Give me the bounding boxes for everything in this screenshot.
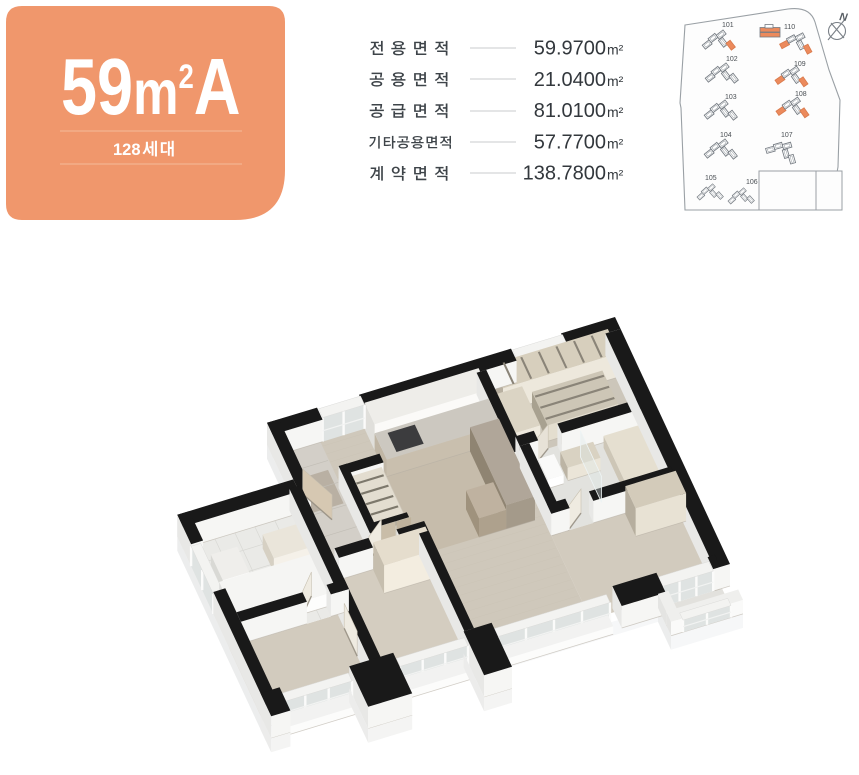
svg-text:101: 101 bbox=[722, 22, 734, 29]
svg-text:81.0100: 81.0100 bbox=[534, 100, 606, 122]
svg-text:21.0400: 21.0400 bbox=[534, 69, 606, 91]
svg-text:m²: m² bbox=[607, 104, 624, 120]
svg-text:108: 108 bbox=[795, 91, 807, 98]
svg-text:128: 128 bbox=[113, 141, 141, 159]
svg-text:57.7700: 57.7700 bbox=[534, 131, 606, 153]
svg-text:m²: m² bbox=[607, 42, 624, 58]
svg-text:138.7800: 138.7800 bbox=[523, 163, 606, 185]
svg-text:110: 110 bbox=[784, 24, 795, 31]
svg-text:103: 103 bbox=[725, 94, 737, 101]
svg-text:m²: m² bbox=[607, 167, 624, 183]
svg-text:m²: m² bbox=[607, 73, 624, 89]
svg-text:106: 106 bbox=[746, 179, 758, 186]
svg-text:m²: m² bbox=[607, 135, 624, 151]
svg-text:107: 107 bbox=[781, 132, 793, 139]
svg-text:104: 104 bbox=[720, 132, 732, 139]
svg-text:109: 109 bbox=[794, 61, 806, 68]
svg-text:105: 105 bbox=[705, 175, 717, 182]
svg-text:59.9700: 59.9700 bbox=[534, 38, 606, 60]
svg-text:N: N bbox=[839, 11, 850, 24]
svg-text:102: 102 bbox=[726, 56, 738, 63]
